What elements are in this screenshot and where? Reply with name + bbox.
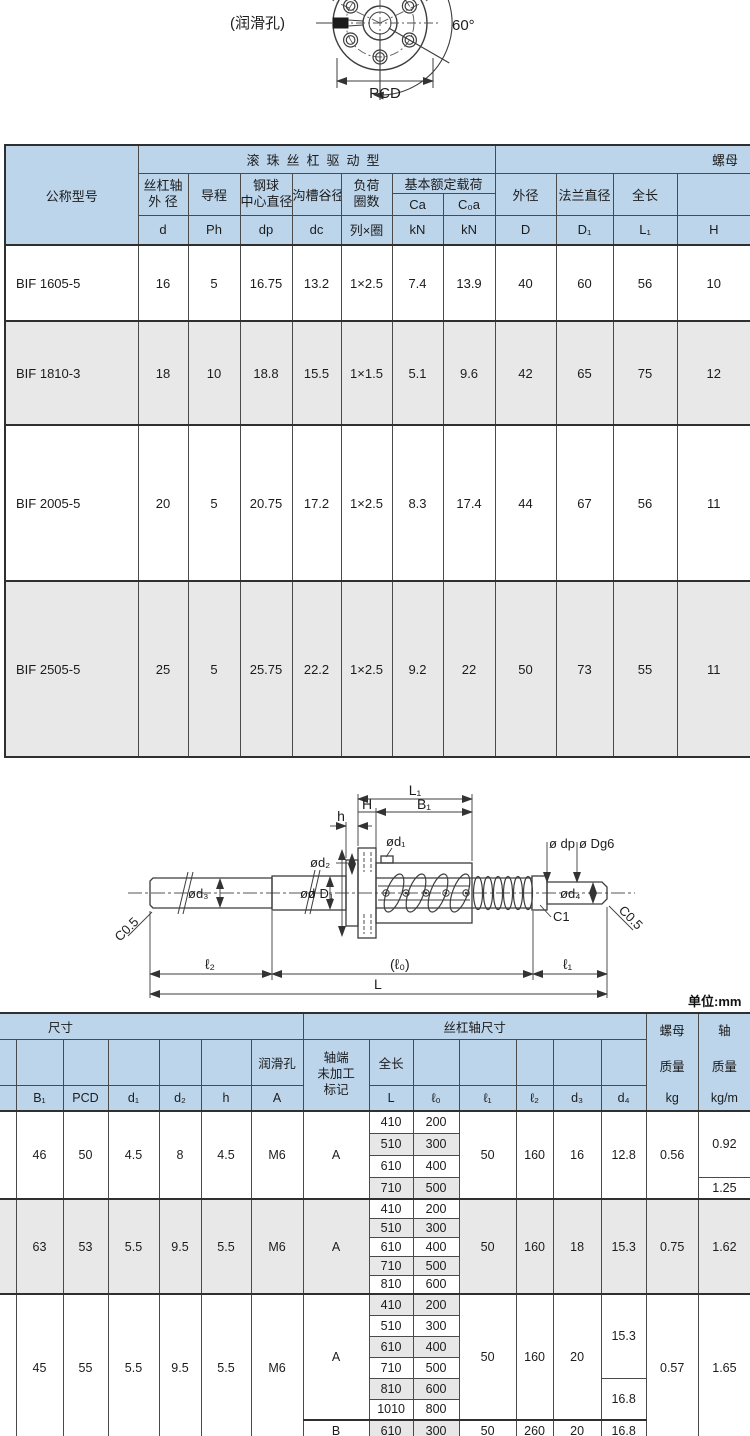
dim-cell: 8	[159, 1111, 201, 1199]
dim-label-c1: C1	[553, 909, 570, 924]
ball-center-dia-header: 钢球中心直径	[240, 173, 292, 215]
dim-label-d2: ød₂	[310, 855, 330, 870]
spec-cell: 1×2.5	[341, 425, 392, 581]
shaft-mass-cell: 1.65	[698, 1294, 750, 1436]
length-cell: 710	[369, 1256, 413, 1275]
spec-cell: 42	[495, 321, 556, 425]
spec-cell: 10	[188, 321, 240, 425]
sym-b1: B₁	[16, 1085, 63, 1111]
dim-cell: 5.5	[201, 1199, 251, 1294]
dim-cell: 12.8	[601, 1111, 646, 1199]
model-column-header: 公称型号	[5, 145, 138, 245]
ball-screw-side-view-drawing: L₁ H B₁ h ød₁ ød₂ ø D₁ ød₃ ød ø dp ø Dg6…	[90, 768, 750, 998]
root-dia-header: 沟槽谷径	[292, 173, 341, 215]
spec-table: 公称型号 滚珠丝杠驱动型 螺母 丝杠轴外 径 导程 钢球中心直径 沟槽谷径 负荷…	[4, 144, 750, 758]
sym-l2: ℓ₂	[516, 1085, 553, 1111]
length-cell: 510	[369, 1218, 413, 1237]
shaft-mass-cell: 1.25	[698, 1177, 750, 1199]
flange-thickness-header	[677, 173, 750, 215]
dim-symbol-row: B₁ PCD d₁ d₂ h A L ℓ₀ ℓ₁ ℓ₂ d₃ d₄	[0, 1085, 750, 1111]
dim-cell: 5.5	[108, 1294, 159, 1436]
spec-cell: 7.4	[392, 245, 443, 321]
nut-od-header: 外径	[495, 173, 556, 215]
shaft-dims-group-header: 丝杠轴尺寸	[303, 1013, 646, 1039]
spec-cell: 18	[138, 321, 188, 425]
lube-port	[316, 18, 363, 28]
mark-cell: B	[303, 1420, 369, 1436]
dim-cell: 15.3	[601, 1199, 646, 1294]
length-cell: 300	[413, 1218, 459, 1237]
sym-H: H	[677, 215, 750, 245]
dim-cell: 160	[516, 1294, 553, 1420]
spec-cell: 17.4	[443, 425, 495, 581]
dim-cell: 50	[459, 1111, 516, 1199]
shaft-mass-cell: 0.92	[698, 1111, 750, 1177]
spec-cell: 5.1	[392, 321, 443, 425]
spec-cell: 22	[443, 581, 495, 757]
nut-mass-cell: 0.57	[646, 1294, 698, 1436]
dim-label-h: h	[337, 808, 345, 824]
spec-cell: 16	[138, 245, 188, 321]
length-cell: 800	[413, 1399, 459, 1420]
flange-dia-header: 法兰直径	[556, 173, 613, 215]
l0-header	[413, 1039, 459, 1085]
spec-cell: 16.75	[240, 245, 292, 321]
dim-cell: 46	[16, 1111, 63, 1199]
dim-label-d: ød	[300, 886, 315, 901]
d3-header	[553, 1039, 601, 1085]
sym-D1: D₁	[556, 215, 613, 245]
dim-cell: M6	[251, 1199, 303, 1294]
spec-cell: 11	[677, 581, 750, 757]
sym-d4: d₄	[601, 1085, 646, 1111]
dim-label-L: L	[374, 976, 382, 992]
spec-cell: 22.2	[292, 581, 341, 757]
spec-cell: 5	[188, 581, 240, 757]
model-cell: BIF 1605-5	[5, 245, 138, 321]
dim-row: 45 55 5.5 9.5 5.5 M6 A 410 200 50 160 20…	[0, 1294, 750, 1315]
length-cell: 200	[413, 1199, 459, 1218]
spec-row: BIF 1810-3 18 10 18.8 15.5 1×1.5 5.1 9.6…	[5, 321, 750, 425]
edge-column-header	[0, 1039, 16, 1085]
length-cell: 500	[413, 1177, 459, 1199]
sym-L1: L₁	[613, 215, 677, 245]
sym-l1: ℓ₁	[459, 1085, 516, 1111]
lead-header: 导程	[188, 173, 240, 215]
sym-d1: d₁	[108, 1085, 159, 1111]
shaft-mass-header: 轴质量kg/m	[698, 1013, 750, 1111]
length-cell: 200	[413, 1294, 459, 1315]
sym-rows-turns: 列×圈	[341, 215, 392, 245]
dim-cell: 18	[553, 1199, 601, 1294]
length-cell: 810	[369, 1275, 413, 1294]
dim-label-dp: ø dp	[549, 836, 575, 851]
dim-cell: M6	[251, 1111, 303, 1199]
mark-cell: A	[303, 1111, 369, 1199]
dim-cell: 16.8	[601, 1420, 646, 1436]
dim-cell: 9.5	[159, 1294, 201, 1436]
model-cell: BIF 2505-5	[5, 581, 138, 757]
l2-header	[516, 1039, 553, 1085]
length-cell: 410	[369, 1111, 413, 1133]
b1-header	[16, 1039, 63, 1085]
spec-cell: 15.5	[292, 321, 341, 425]
dimension-table: 尺寸 丝杠轴尺寸 螺母质量kg 轴质量kg/m 润滑孔 轴端未加工标记 全长	[0, 1012, 750, 1436]
spec-row: BIF 1605-5 16 5 16.75 13.2 1×2.5 7.4 13.…	[5, 245, 750, 321]
length-cell: 400	[413, 1237, 459, 1256]
spec-cell: 25	[138, 581, 188, 757]
spec-cell: 56	[613, 245, 677, 321]
flange-front-view-drawing: (润滑孔) 60° PCD	[222, 0, 522, 100]
lube-fitting	[381, 856, 393, 863]
spec-cell: 55	[613, 581, 677, 757]
dim-header-group-row: 尺寸 丝杠轴尺寸 螺母质量kg 轴质量kg/m	[0, 1013, 750, 1039]
sym-D: D	[495, 215, 556, 245]
sym-d: d	[138, 215, 188, 245]
dim-cell: 9.5	[159, 1199, 201, 1294]
spec-cell: 73	[556, 581, 613, 757]
rated-load-group-header: 基本额定载荷	[392, 173, 495, 193]
nut-mass-cell: 0.56	[646, 1111, 698, 1199]
edge-sym	[0, 1085, 16, 1111]
dim-cell: 20	[553, 1294, 601, 1420]
dim-label-c05-left: C0.5	[112, 914, 142, 944]
dim-cell: 5.5	[201, 1294, 251, 1436]
length-cell: 300	[413, 1420, 459, 1436]
length-cell: 400	[413, 1336, 459, 1357]
dimensions-group-header: 尺寸	[0, 1013, 303, 1039]
length-cell: 610	[369, 1155, 413, 1177]
l1-header	[459, 1039, 516, 1085]
spec-cell: 11	[677, 425, 750, 581]
length-cell: 510	[369, 1133, 413, 1155]
spec-row: BIF 2005-5 20 5 20.75 17.2 1×2.5 8.3 17.…	[5, 425, 750, 581]
dim-label-c05-right: C0.5	[616, 903, 646, 933]
sym-pcd: PCD	[63, 1085, 108, 1111]
lube-hole-label: (润滑孔)	[230, 15, 285, 32]
spec-cell: 9.2	[392, 581, 443, 757]
dim-cell: M6	[251, 1294, 303, 1436]
dim-cell: 50	[459, 1294, 516, 1420]
dim-cell: 16.8	[601, 1378, 646, 1420]
spec-cell: 8.3	[392, 425, 443, 581]
dim-row: 63 53 5.5 9.5 5.5 M6 A 410 200 50 160 18…	[0, 1199, 750, 1218]
length-cell: 610	[369, 1420, 413, 1436]
spec-cell: 67	[556, 425, 613, 581]
edge-cell	[0, 1294, 16, 1436]
dynamic-load-header: Ca	[392, 193, 443, 215]
spec-cell: 44	[495, 425, 556, 581]
dim-label-l0: (ℓ₀)	[390, 956, 410, 972]
sym-kn-ca: kN	[392, 215, 443, 245]
sym-dc: dc	[292, 215, 341, 245]
dim-label-el1: ℓ₁	[563, 956, 573, 972]
spec-row: BIF 2505-5 25 5 25.75 22.2 1×2.5 9.2 22 …	[5, 581, 750, 757]
spec-cell: 20.75	[240, 425, 292, 581]
lube-hole-header: 润滑孔	[251, 1039, 303, 1085]
length-cell: 710	[369, 1177, 413, 1199]
spec-cell: 5	[188, 425, 240, 581]
dim-cell: 50	[459, 1420, 516, 1436]
exposed-thread-coil	[474, 877, 533, 910]
dim-label-d3: ød₃	[188, 886, 208, 901]
length-cell: 500	[413, 1357, 459, 1378]
length-cell: 610	[369, 1237, 413, 1256]
unit-note: 单位:mm	[688, 991, 741, 1010]
dim-label-H: H	[362, 796, 372, 812]
drive-type-group-header: 滚珠丝杠驱动型	[138, 145, 495, 173]
sym-L: L	[369, 1085, 413, 1111]
dim-cell: 4.5	[108, 1111, 159, 1199]
shaft-mass-cell: 1.62	[698, 1199, 750, 1294]
nut-length-header: 全长	[613, 173, 677, 215]
spec-cell: 40	[495, 245, 556, 321]
spec-cell: 9.6	[443, 321, 495, 425]
sym-a: A	[251, 1085, 303, 1111]
length-cell: 600	[413, 1378, 459, 1399]
spec-cell: 50	[495, 581, 556, 757]
dim-cell: 4.5	[201, 1111, 251, 1199]
spec-cell: 20	[138, 425, 188, 581]
length-cell: 1010	[369, 1399, 413, 1420]
spec-cell: 13.2	[292, 245, 341, 321]
spec-cell: 60	[556, 245, 613, 321]
datasheet-page: { "page": { "unit_note": "单位:mm" }, "fro…	[0, 0, 750, 1436]
angle-label: 60°	[452, 17, 475, 34]
nut-mass-cell: 0.75	[646, 1199, 698, 1294]
dim-cell: 15.3	[601, 1294, 646, 1378]
length-cell: 510	[369, 1315, 413, 1336]
dim-header-label-row: 润滑孔 轴端未加工标记 全长	[0, 1039, 750, 1085]
model-cell: BIF 1810-3	[5, 321, 138, 425]
static-load-header: C₀a	[443, 193, 495, 215]
d4-header	[601, 1039, 646, 1085]
dim-cell: 16	[553, 1111, 601, 1199]
length-cell: 610	[369, 1336, 413, 1357]
spec-cell: 17.2	[292, 425, 341, 581]
sym-d2: d₂	[159, 1085, 201, 1111]
sym-l0: ℓ₀	[413, 1085, 459, 1111]
length-cell: 200	[413, 1111, 459, 1133]
spec-cell: 1×2.5	[341, 581, 392, 757]
dim-cell: 5.5	[108, 1199, 159, 1294]
dim-cell: 45	[16, 1294, 63, 1436]
sym-ph: Ph	[188, 215, 240, 245]
edge-cell	[0, 1199, 16, 1294]
model-cell: BIF 2005-5	[5, 425, 138, 581]
spec-cell: 75	[613, 321, 677, 425]
dim-cell: 55	[63, 1294, 108, 1436]
spec-header-group-row: 公称型号 滚珠丝杠驱动型 螺母	[5, 145, 750, 173]
pcd-label: PCD	[369, 85, 401, 100]
dim-label-l2: ℓ₂	[205, 956, 215, 972]
dim-label-d4: ød₄	[560, 886, 580, 901]
pcd-header	[63, 1039, 108, 1085]
d2-header	[159, 1039, 201, 1085]
spec-cell: 25.75	[240, 581, 292, 757]
total-length-header: 全长	[369, 1039, 413, 1085]
dim-cell: 50	[63, 1111, 108, 1199]
dim-label-d1: ød₁	[386, 834, 406, 849]
sym-h: h	[201, 1085, 251, 1111]
spec-cell: 56	[613, 425, 677, 581]
spec-cell: 10	[677, 245, 750, 321]
length-cell: 410	[369, 1294, 413, 1315]
h-header	[201, 1039, 251, 1085]
dim-label-dg6: ø Dg6	[579, 836, 614, 851]
spec-cell: 5	[188, 245, 240, 321]
length-cell: 410	[369, 1199, 413, 1218]
dim-cell: 260	[516, 1420, 553, 1436]
edge-cell	[0, 1111, 16, 1199]
dim-row: 46 50 4.5 8 4.5 M6 A 410 200 50 160 16 1…	[0, 1111, 750, 1133]
spec-cell: 65	[556, 321, 613, 425]
spec-cell: 13.9	[443, 245, 495, 321]
mark-cell: A	[303, 1199, 369, 1294]
dim-cell: 160	[516, 1111, 553, 1199]
dim-cell: 50	[459, 1199, 516, 1294]
spec-cell: 12	[677, 321, 750, 425]
shaft-od-header: 丝杠轴外 径	[138, 173, 188, 215]
d1-header	[108, 1039, 159, 1085]
length-cell: 300	[413, 1315, 459, 1336]
nut-mass-header: 螺母质量kg	[646, 1013, 698, 1111]
dim-cell: 160	[516, 1199, 553, 1294]
length-cell: 600	[413, 1275, 459, 1294]
sym-dp: dp	[240, 215, 292, 245]
load-circuits-header: 负荷圈数	[341, 173, 392, 215]
spec-cell: 1×1.5	[341, 321, 392, 425]
sym-kn-c0a: kN	[443, 215, 495, 245]
length-cell: 300	[413, 1133, 459, 1155]
mark-cell: A	[303, 1294, 369, 1420]
dim-cell: 63	[16, 1199, 63, 1294]
length-cell: 400	[413, 1155, 459, 1177]
spec-cell: 1×2.5	[341, 245, 392, 321]
dim-cell: 20	[553, 1420, 601, 1436]
dim-label-b1: B₁	[417, 796, 431, 812]
dim-cell: 53	[63, 1199, 108, 1294]
sym-d3: d₃	[553, 1085, 601, 1111]
length-cell: 810	[369, 1378, 413, 1399]
spec-cell: 18.8	[240, 321, 292, 425]
length-cell: 710	[369, 1357, 413, 1378]
shaft-end-mark-header: 轴端未加工标记	[303, 1039, 369, 1111]
nut-group-header: 螺母	[495, 145, 750, 173]
length-cell: 500	[413, 1256, 459, 1275]
